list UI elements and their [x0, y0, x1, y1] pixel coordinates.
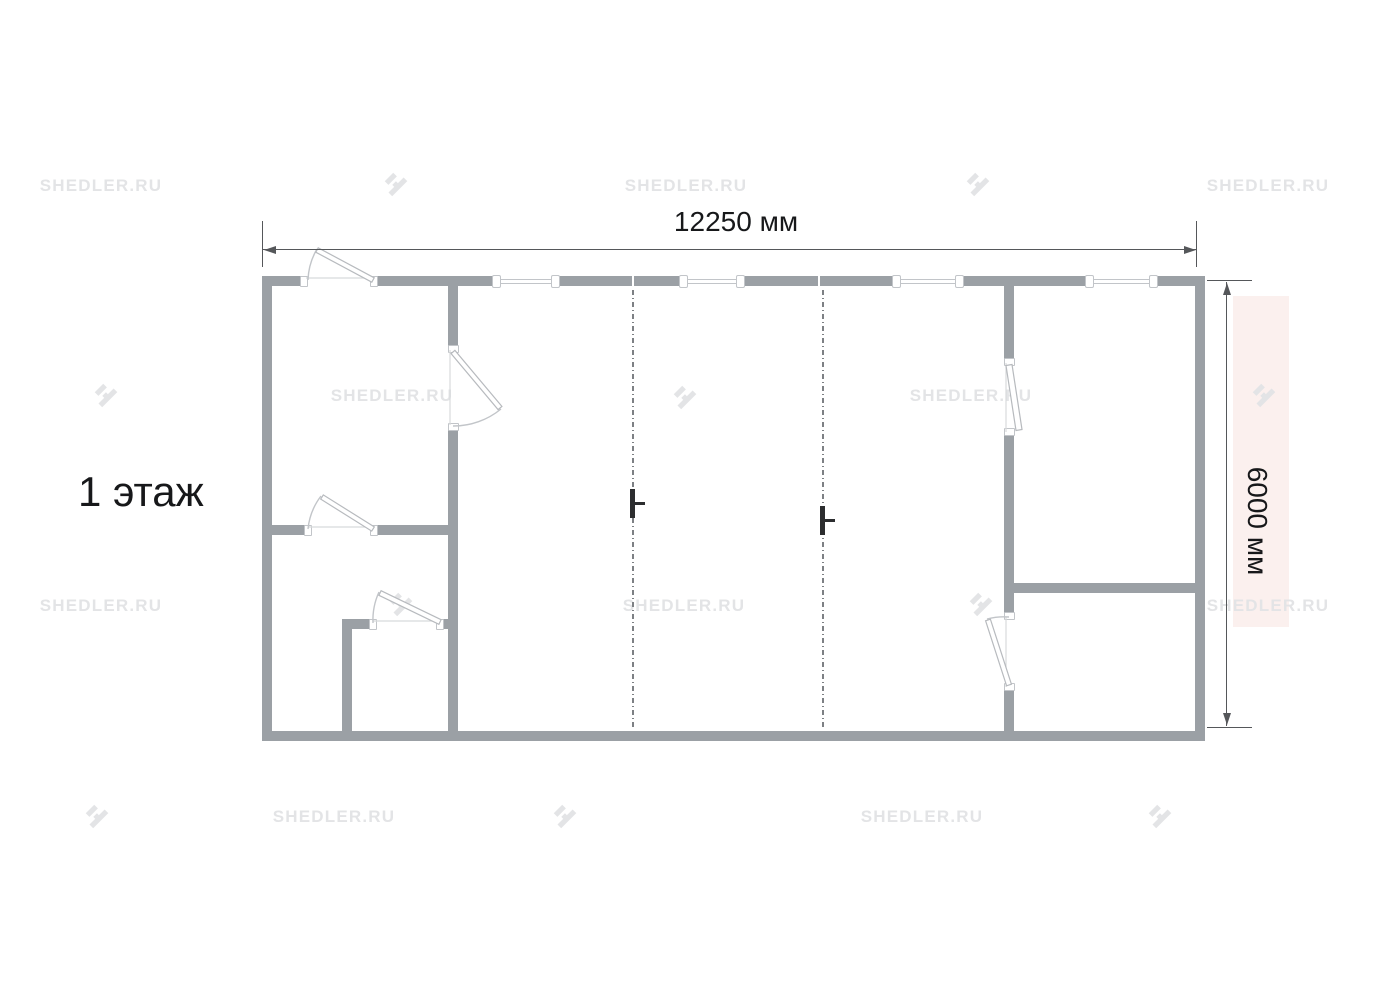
- window-cap: [1149, 275, 1158, 288]
- shedler-logo-icon: [384, 587, 418, 621]
- extension-tick: [1207, 280, 1252, 281]
- window: [680, 277, 744, 285]
- window-glazing: [687, 279, 737, 284]
- door-jamb: [448, 345, 459, 353]
- shedler-logo-icon: [668, 380, 702, 414]
- extension-tick: [1207, 727, 1252, 728]
- shedler-logo-icon: [379, 167, 413, 201]
- dimension-line: [263, 249, 1197, 250]
- floor-plan-page: SHEDLER.RU SHEDLER.RU SHEDLER.RU SHEDLER…: [0, 0, 1400, 991]
- wall-segment: [1195, 276, 1205, 741]
- door-jamb: [300, 276, 308, 287]
- watermark-text: SHEDLER.RU: [331, 386, 454, 406]
- floor-label: 1 этаж: [78, 468, 204, 516]
- shedler-logo-icon: [1143, 799, 1177, 833]
- watermark-text: SHEDLER.RU: [625, 176, 748, 196]
- arrow-left-icon: [264, 246, 276, 254]
- watermark-text: SHEDLER.RU: [861, 807, 984, 827]
- wall-segment: [744, 276, 818, 286]
- window: [493, 277, 559, 285]
- window-cap: [955, 275, 964, 288]
- joint-connector-marker: [825, 519, 835, 522]
- doors-overlay: [0, 0, 1400, 991]
- door-thresholds: [306, 278, 1006, 687]
- watermark-text: SHEDLER.RU: [40, 176, 163, 196]
- window-glazing: [900, 279, 956, 284]
- wall-segment: [373, 276, 493, 286]
- wall-segment: [963, 276, 1086, 286]
- wall-segment: [1014, 583, 1195, 593]
- door-jamb: [369, 619, 377, 630]
- door-jamb: [370, 525, 378, 536]
- pink-highlight-band: [1233, 296, 1289, 627]
- extension-tick: [262, 221, 263, 267]
- shedler-logo-icon: [548, 799, 582, 833]
- door-leaves: [316, 248, 1022, 686]
- height-dimension-label: 6000 мм: [1241, 467, 1273, 576]
- door-jamb: [436, 619, 444, 630]
- arrow-up-icon: [1223, 283, 1231, 295]
- wall-segment: [634, 276, 680, 286]
- window: [1086, 277, 1157, 285]
- wall-segment: [448, 425, 458, 731]
- door-jamb: [1004, 358, 1015, 366]
- shedler-logo-icon: [89, 378, 123, 412]
- shedler-logo-icon: [1247, 378, 1281, 412]
- wall-segment: [1004, 286, 1014, 363]
- arrow-down-icon: [1223, 713, 1231, 725]
- door-jamb: [1004, 428, 1015, 436]
- window-glazing: [500, 279, 552, 284]
- wall-segment: [373, 525, 448, 535]
- watermark-text: SHEDLER.RU: [623, 596, 746, 616]
- wall-segment: [820, 276, 893, 286]
- watermark-text: SHEDLER.RU: [273, 807, 396, 827]
- window: [893, 277, 963, 285]
- arrow-right-icon: [1184, 246, 1196, 254]
- wall-segment: [559, 276, 632, 286]
- wall-segment: [448, 286, 458, 350]
- watermark-text: SHEDLER.RU: [1207, 176, 1330, 196]
- dimension-line: [1226, 282, 1227, 726]
- shedler-logo-icon: [80, 799, 114, 833]
- wall-segment: [262, 731, 1205, 741]
- joint-connector-marker: [635, 502, 645, 505]
- window-cap: [551, 275, 560, 288]
- watermark-text: SHEDLER.RU: [910, 386, 1033, 406]
- wall-segment: [1004, 687, 1014, 731]
- shedler-logo-icon: [964, 587, 998, 621]
- wall-segment: [272, 525, 308, 535]
- extension-tick: [1196, 221, 1197, 267]
- shedler-logo-icon: [961, 167, 995, 201]
- wall-segment: [342, 619, 352, 731]
- door-swing-arcs: [308, 249, 1009, 623]
- wall-segment: [1004, 432, 1014, 617]
- window-cap: [736, 275, 745, 288]
- door-jamb: [304, 525, 312, 536]
- door-jamb: [448, 423, 459, 431]
- watermark-text: SHEDLER.RU: [40, 596, 163, 616]
- window-glazing: [1093, 279, 1150, 284]
- door-jamb: [370, 276, 378, 287]
- door-jamb: [1004, 612, 1015, 620]
- width-dimension-label: 12250 мм: [674, 206, 798, 238]
- wall-segment: [262, 276, 272, 741]
- door-jamb: [1004, 683, 1015, 691]
